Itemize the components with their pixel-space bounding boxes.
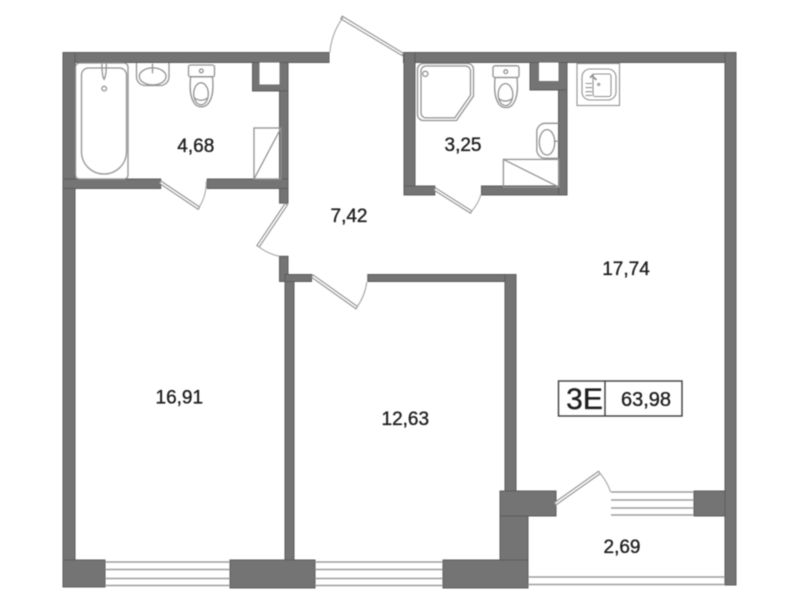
svg-text:17,74: 17,74: [602, 259, 650, 280]
svg-text:4,68: 4,68: [177, 136, 214, 157]
svg-text:3,25: 3,25: [445, 135, 482, 156]
svg-text:3Е: 3Е: [566, 383, 603, 416]
svg-text:7,42: 7,42: [331, 206, 368, 227]
svg-text:16,91: 16,91: [156, 388, 204, 409]
svg-text:2,69: 2,69: [604, 537, 641, 558]
svg-text:63,98: 63,98: [621, 389, 671, 411]
svg-text:12,63: 12,63: [382, 409, 430, 430]
